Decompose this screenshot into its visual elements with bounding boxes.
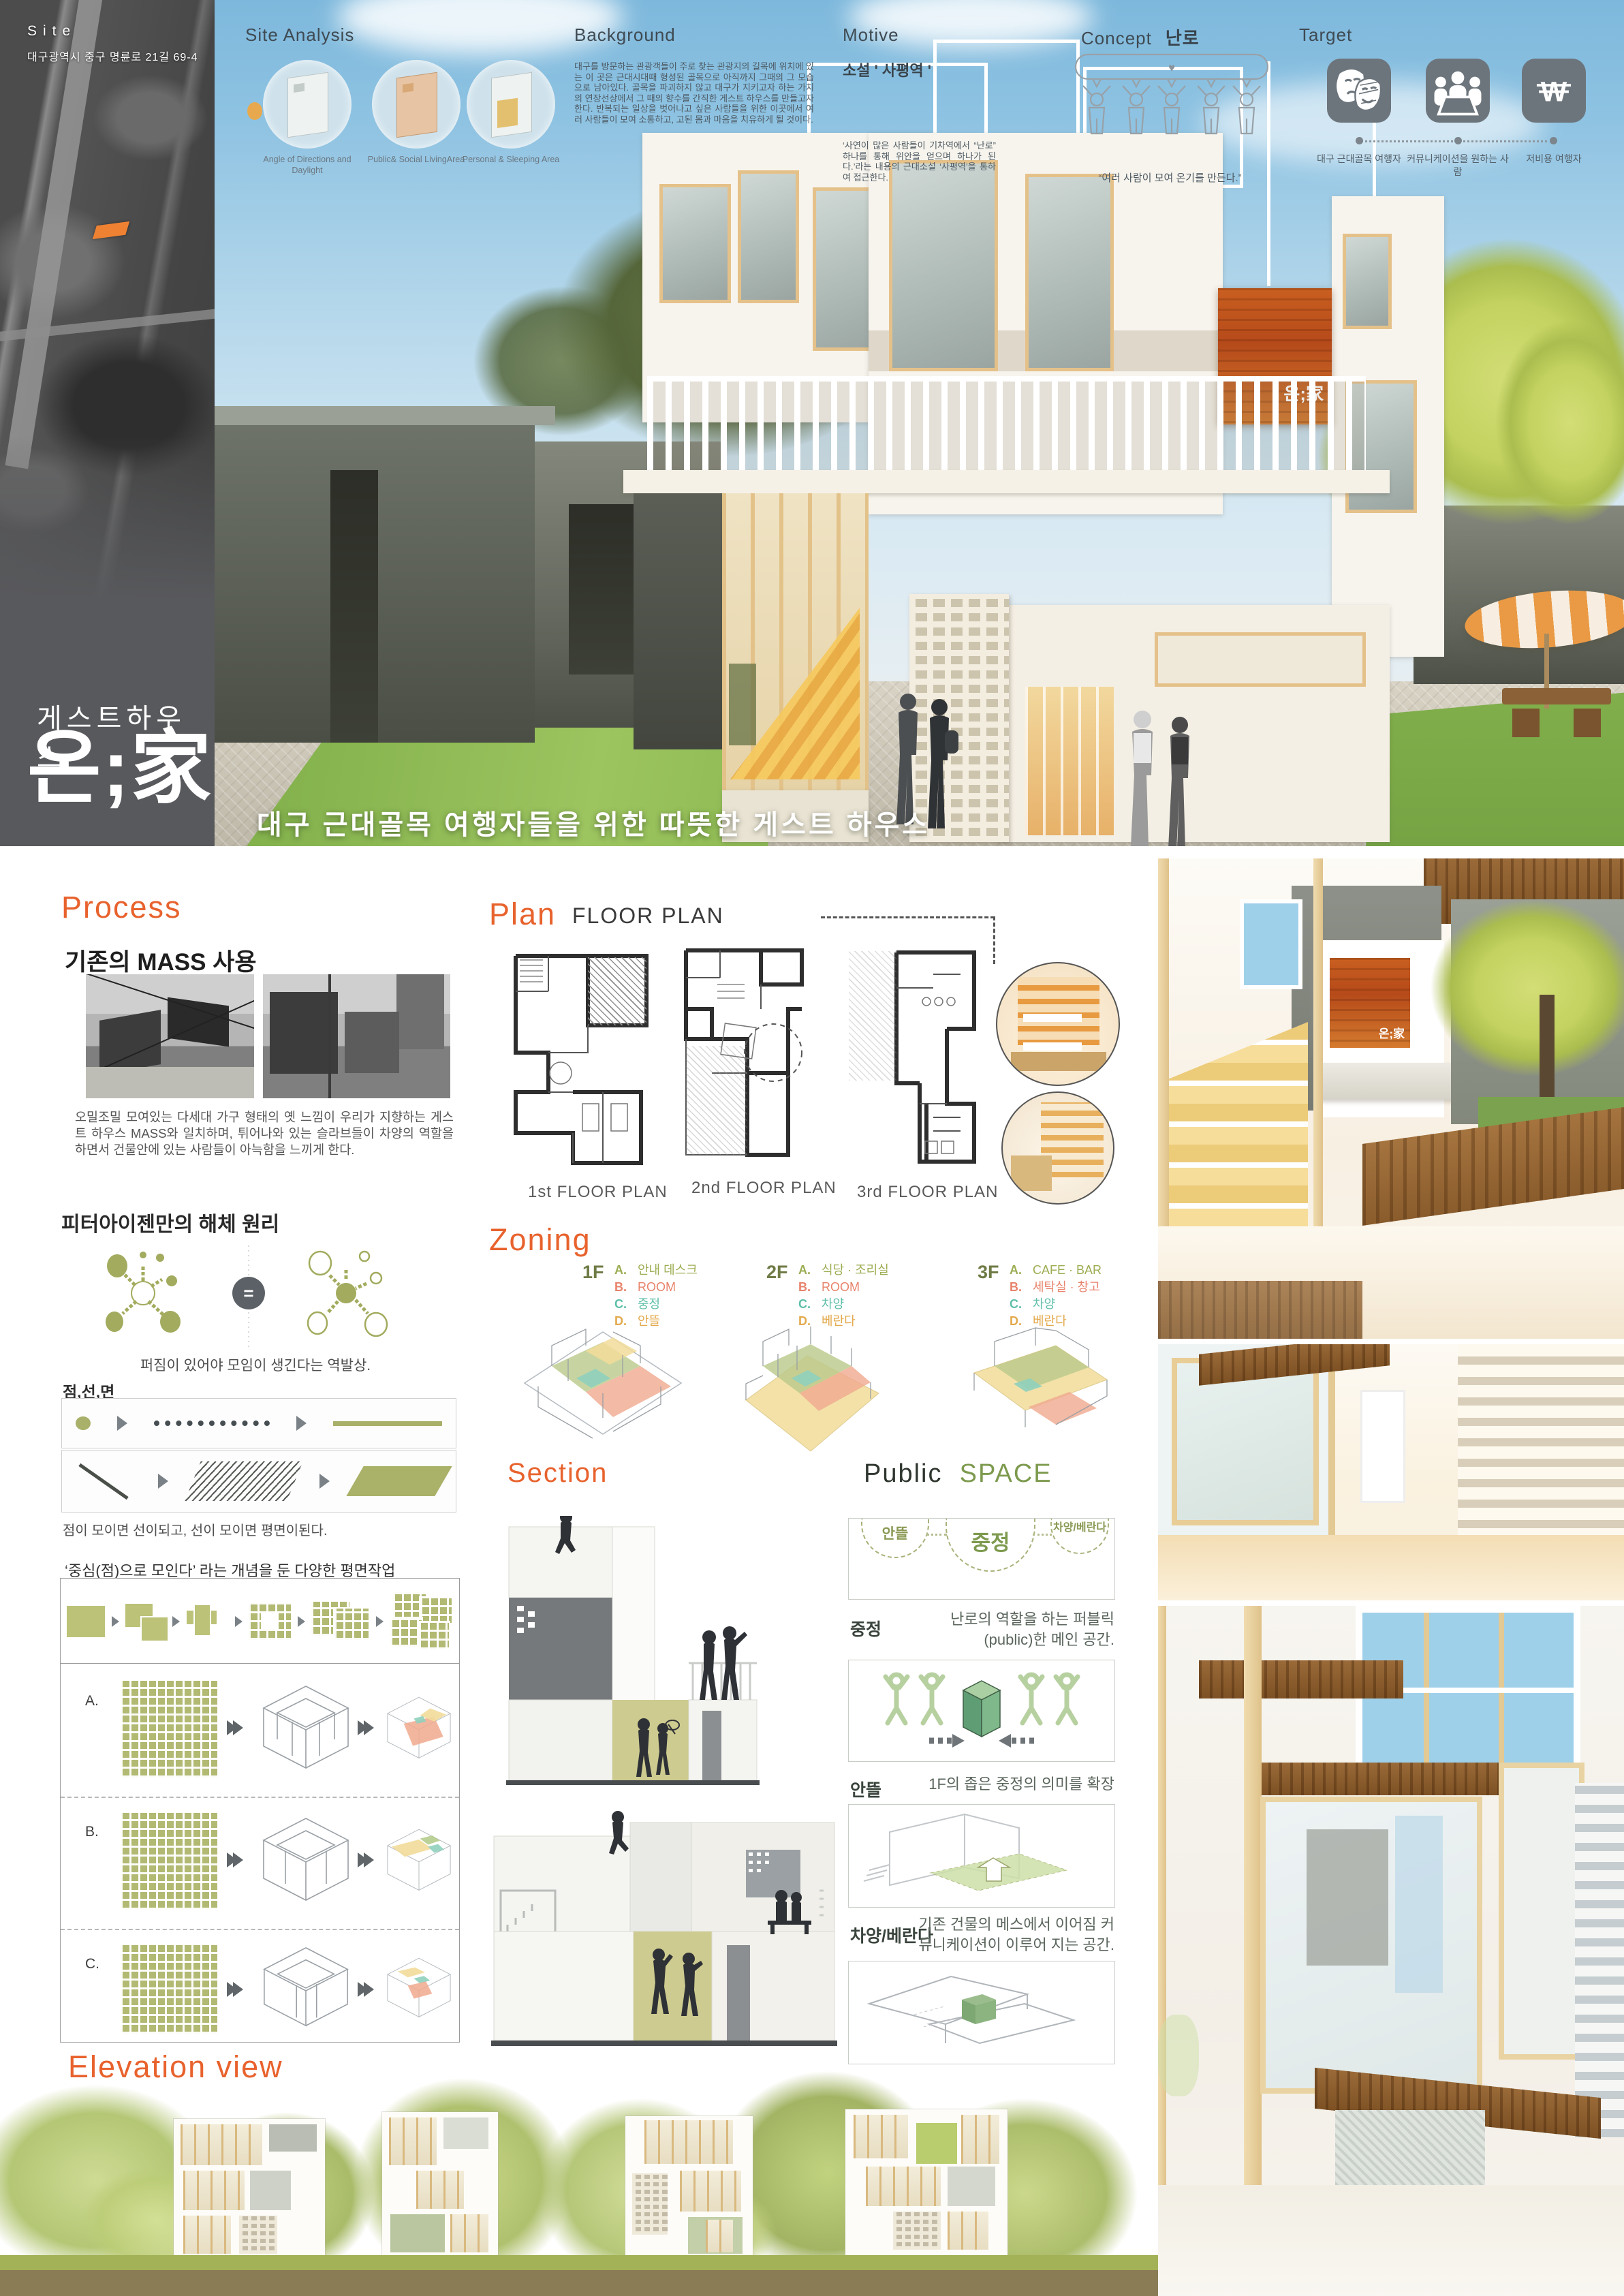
wood-deck-bench	[1362, 1107, 1624, 1226]
corridor-floor	[1158, 1535, 1624, 1600]
floor-slab	[623, 470, 1390, 493]
entry-label: 안뜰	[850, 1777, 881, 1801]
svg-text:=: =	[243, 1283, 253, 1303]
concept-keyword: 난로	[1166, 28, 1200, 48]
svg-text:♥: ♥	[1168, 61, 1175, 74]
glass-wall	[1260, 1797, 1482, 2094]
meeting-table-icon	[1426, 59, 1490, 123]
process-body: 오밀조밀 모여있는 다세대 가구 형태의 옛 느낌이 우리가 지향하는 게스트 …	[75, 1109, 454, 1158]
concept-plan-box: A. B.	[60, 1578, 460, 2043]
floor-plan-label: 3rd FLOOR PLAN	[857, 1183, 998, 1202]
corner-window	[1172, 1358, 1319, 1525]
pattern-a	[121, 1681, 217, 1778]
entry-desc: 1F의 좁은 중정의 의미를 확장	[906, 1774, 1114, 1795]
floor-plan-2	[679, 944, 815, 1168]
zoning-axon-3f	[926, 1318, 1117, 1461]
glass-wall	[1499, 1763, 1584, 2060]
interior-render-corridor	[1158, 1344, 1624, 1600]
line-to-plane-diagram	[61, 1450, 456, 1512]
entry-desc: 난로의 역할을 하는 퍼블릭(public)한 메인 공간.	[906, 1609, 1114, 1650]
courtyard-tree	[1431, 899, 1624, 1076]
zoning-axon-2f	[715, 1318, 899, 1461]
axon-wireframe	[258, 1942, 354, 2038]
hero-tagline: 대구 근대골목 여행자들을 위한 따뜻한 게스트 하우스	[257, 803, 930, 842]
background-title: Background	[574, 25, 676, 46]
eisenman-title: 피터아이젠만의 해체 원리	[61, 1207, 279, 1237]
detail-leader	[821, 916, 995, 918]
dotted-line-glyph	[154, 1421, 270, 1426]
target-label: 저비용 여행자	[1499, 153, 1608, 166]
presentation-board: Site 대구광역시 중구 명륜로 21길 69-4 게스트하우스 온;家	[0, 0, 1624, 2296]
window	[659, 184, 731, 303]
concept-title: Concept난로	[1081, 25, 1200, 50]
entry-label: 중정	[850, 1616, 881, 1641]
elevation-building	[845, 2109, 1008, 2256]
hatch-glyph	[185, 1461, 302, 1501]
site-analysis-diagram-public	[372, 60, 460, 149]
section-title: Section	[507, 1458, 608, 1489]
picnic-bench	[1512, 709, 1540, 737]
site-label: Site	[27, 23, 76, 40]
hero-render: 온;家 Site Analysis	[215, 0, 1624, 846]
zoning-floor: 2F	[766, 1262, 788, 1283]
zoning-floor: 1F	[582, 1262, 604, 1283]
row-label: C.	[85, 1956, 99, 1972]
point-to-line-diagram	[61, 1398, 456, 1448]
corridor-column	[1362, 1392, 1403, 1501]
tree	[1495, 320, 1624, 525]
lobby-stairs	[1158, 1022, 1308, 1226]
detail-leader	[993, 916, 995, 964]
brand-name: 온;家	[27, 721, 213, 818]
section-drawing-1	[501, 1516, 766, 1788]
elevation-building	[382, 2112, 498, 2256]
site-analysis-diagram-personal	[467, 60, 555, 149]
axon-wireframe	[258, 1681, 354, 1778]
axon-colored	[384, 1813, 454, 1910]
building-opening	[330, 470, 378, 743]
plan-title: Plan	[489, 897, 556, 932]
elevation-building	[625, 2116, 753, 2256]
zoning-title: Zoning	[489, 1222, 591, 1258]
interior-render-lobby: 온;家	[1158, 858, 1624, 1339]
wood-beam	[1247, 1763, 1533, 1795]
target-label: 대구 근대골목 여행자	[1305, 153, 1414, 166]
perforated-screen	[1575, 1783, 1624, 2137]
process-photo	[263, 974, 450, 1098]
background-body: 대구를 방문하는 관광객들이 주로 찾는 관광지의 길목에 위치에 있는 이 곳…	[574, 61, 814, 125]
detail-render-screen	[1001, 1091, 1114, 1205]
window	[1343, 234, 1392, 329]
public-space-bubbles: 안뜰 중정 차양/베란다	[848, 1518, 1115, 1600]
lobby-sign-text: 온;家	[1379, 1024, 1405, 1041]
site-analysis-title: Site Analysis	[245, 25, 354, 46]
people-silhouettes	[1115, 706, 1207, 846]
inner-court-diagram	[848, 1804, 1115, 1908]
site-sidebar: Site 대구광역시 중구 명륜로 21길 69-4 게스트하우스 온;家	[0, 0, 215, 846]
site-analysis-diagram-daylight	[263, 60, 352, 149]
site-address: 대구광역시 중구 명륜로 21길 69-4	[27, 48, 198, 64]
floor-plan-label: 1st FLOOR PLAN	[528, 1183, 668, 1202]
stair-glass-wall	[722, 493, 869, 796]
theater-masks-icon	[1327, 59, 1391, 123]
entry-door	[1025, 687, 1114, 835]
target-title: Target	[1299, 25, 1352, 46]
motive-body: ‘사연이 많은 사람들이 기차역에서 “난로” 하나를 통해 위안을 얻으며 하…	[843, 140, 996, 183]
eisenman-caption: 퍼짐이 있어야 모임이 생긴다는 역발상.	[102, 1354, 409, 1375]
window	[738, 170, 799, 303]
entry-desc: 기존 건물의 메스에서 이어짐 커뮤니케이션이 이루어 지는 공간.	[906, 1914, 1114, 1955]
window	[1025, 174, 1114, 371]
void-floor	[1158, 2185, 1624, 2296]
axon-colored	[384, 1681, 454, 1778]
diagonal-line-glyph	[79, 1463, 129, 1499]
axon-wireframe	[258, 1813, 354, 1910]
pattern-c	[121, 1945, 217, 2034]
courtyard-diagram	[848, 1660, 1115, 1762]
interior-render-void	[1158, 1606, 1624, 2296]
zoning-axon-1f	[511, 1318, 695, 1461]
site-satellite-map	[0, 0, 215, 654]
axon-colored	[384, 1942, 454, 2038]
sun-icon	[247, 102, 262, 120]
plant	[729, 664, 756, 745]
target-label: 커뮤니케이션을 원하는 사람	[1403, 153, 1512, 179]
sky-window	[1240, 899, 1302, 989]
terrace-railing	[647, 376, 1366, 477]
section-drawing-2	[487, 1809, 841, 2047]
concept-diagram: ♥	[1072, 50, 1272, 153]
map-road	[5, 0, 102, 469]
zoning-floor: 3F	[978, 1262, 999, 1283]
site-analysis-label: Personal & Sleeping Area	[453, 154, 569, 165]
detail-render-bunk	[996, 962, 1120, 1086]
motive-title: Motive	[843, 25, 899, 46]
public-space-title: Public SPACE	[864, 1459, 1052, 1489]
concrete-wall	[634, 477, 725, 749]
plan-subtitle: FLOOR PLAN	[572, 903, 724, 929]
row-label: B.	[85, 1824, 99, 1840]
elevation-strip	[0, 2071, 1158, 2296]
process-title: Process	[61, 890, 182, 925]
concrete-roof	[215, 406, 555, 425]
process-photo	[86, 974, 254, 1098]
site-analysis-label: Angle of Directions and Daylight	[249, 154, 365, 176]
motive-subtitle: 소설 ' 사평역 '	[843, 59, 931, 80]
elevation-building	[174, 2119, 325, 2256]
lobby-signboard: 온;家	[1330, 958, 1410, 1048]
concept-caption: “여러 사람이 모여 온기를 만든다.”	[1059, 170, 1281, 185]
wood-beam	[1199, 1660, 1403, 1698]
picnic-bench	[1574, 709, 1601, 737]
eisenman-diagram: =	[95, 1245, 402, 1348]
clerestory-window	[1155, 632, 1366, 687]
floor-plan-1	[507, 950, 651, 1168]
picnic-table	[1502, 688, 1611, 704]
plane-glyph	[346, 1466, 452, 1496]
point-line-plane-caption: 점이 모이면 선이되고, 선이 모이면 평면이된다.	[63, 1519, 328, 1539]
dot-glyph	[76, 1416, 91, 1430]
row-label: A.	[85, 1693, 99, 1709]
mass-sequence	[61, 1587, 459, 1656]
window	[889, 160, 998, 371]
floor-plan-label: 2nd FLOOR PLAN	[691, 1179, 837, 1198]
won-currency-icon: W	[1522, 59, 1586, 123]
lower-court-paving	[1335, 2110, 1485, 2185]
plant	[1158, 2015, 1199, 2096]
awning-diagram	[848, 1961, 1115, 2064]
process-subtitle: 기존의 MASS 사용	[65, 943, 257, 978]
pattern-b	[121, 1813, 217, 1910]
tree-trunk	[1540, 995, 1555, 1111]
floor-plan-3	[845, 947, 981, 1168]
line-glyph	[333, 1421, 442, 1426]
